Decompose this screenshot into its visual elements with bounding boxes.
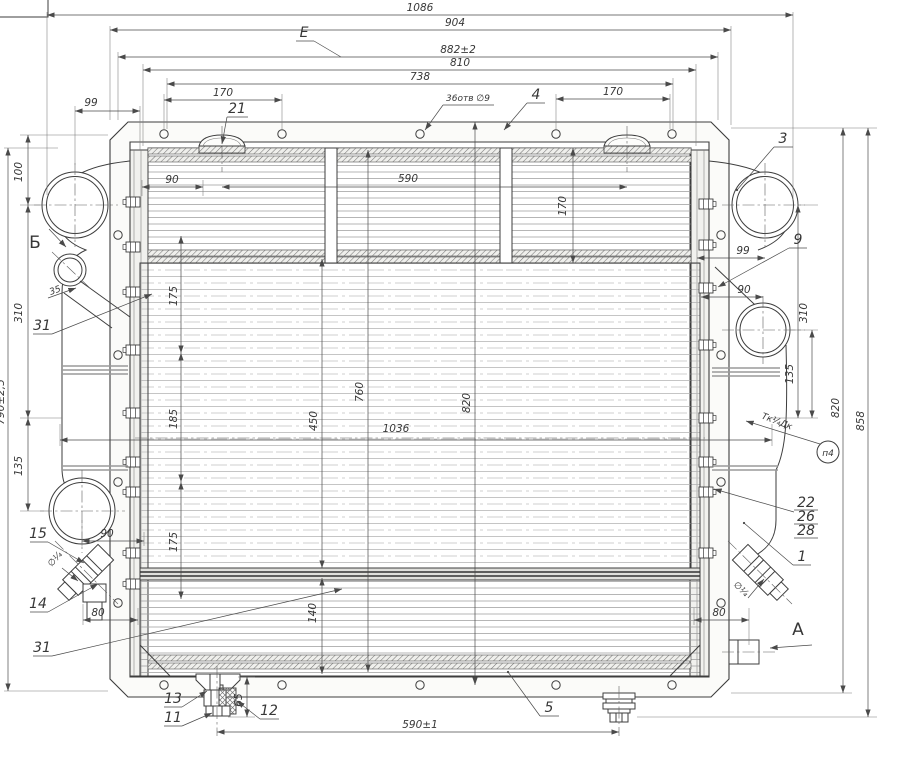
- dim-90-core-label: 90: [165, 174, 179, 186]
- callout-11: 11: [164, 710, 212, 726]
- dim-99-top-left: 99: [75, 97, 140, 111]
- dim-590-bottom: 590±1: [217, 719, 619, 732]
- callout-3-label: 3: [779, 131, 788, 147]
- dim-810: 810: [143, 57, 696, 70]
- main-core: [140, 263, 700, 568]
- view-a: A: [770, 620, 812, 648]
- view-a-label: A: [792, 620, 804, 640]
- dim-170-top-left: 170: [164, 87, 282, 100]
- callout-9: 9: [718, 232, 807, 287]
- dim-170-top-right: 170: [556, 86, 670, 99]
- dim-450-label: 450: [308, 411, 320, 431]
- radiator-drawing: 1086 904 882±2 810 738 170 170 99 90 590…: [0, 0, 900, 761]
- drawing-sheet: 1086 904 882±2 810 738 170 170 99 90 590…: [0, 0, 900, 761]
- callout-31-upper-label: 31: [33, 318, 51, 334]
- view-b-label: Б: [29, 233, 41, 253]
- dim-858: 858: [855, 128, 868, 717]
- dim-170-core-label: 170: [557, 196, 569, 216]
- dim-135-right-label: 135: [784, 364, 796, 384]
- dim-590-core-label: 590: [398, 173, 418, 185]
- tank-divider-left: [325, 148, 337, 263]
- dim-820-core-label: 820: [461, 393, 473, 413]
- callout-15-label: 15: [29, 526, 47, 542]
- dim-99-tl-label: 99: [84, 97, 98, 109]
- dim-chain-left-outer: 100 310 135: [13, 135, 28, 511]
- dim-882-label: 882±2: [440, 44, 476, 56]
- ref-p4-label: п4: [822, 449, 834, 459]
- dim-310-left-label: 310: [13, 303, 25, 323]
- callout-11-label: 11: [164, 710, 182, 726]
- dim-1036-label: 1036: [383, 423, 410, 435]
- dim-185-label: 185: [168, 409, 180, 429]
- callout-12-label: 12: [260, 703, 278, 719]
- dim-90-ll-label: 90: [100, 528, 114, 540]
- callout-13-label: 13: [164, 691, 182, 707]
- dim-810-label: 810: [450, 57, 470, 69]
- dim-175-lower-label: 175: [168, 532, 180, 552]
- sheet-border-corner: [0, 0, 48, 17]
- note-thread-label: Тк¼Дк: [760, 412, 794, 433]
- ref-p4: п4: [817, 441, 839, 463]
- tank-divider-right: [500, 148, 512, 263]
- dim-135-left-label: 135: [13, 456, 25, 476]
- dim-820-right: 820: [830, 128, 843, 693]
- dim-chain-left-plate: 175 185 175: [168, 236, 181, 599]
- dim-170-tl-label: 170: [213, 87, 233, 99]
- dim-760-label: 760: [354, 382, 366, 402]
- ref-e-label: E: [300, 25, 309, 41]
- dim-1086-label: 1086: [407, 2, 434, 14]
- dim-80-left-label: 80: [91, 607, 105, 619]
- dim-904: 904: [110, 17, 731, 30]
- dim-858-label: 858: [855, 411, 867, 431]
- dim-882: 882±2: [118, 44, 718, 57]
- callout-14-label: 14: [29, 596, 47, 612]
- dim-820-right-label: 820: [830, 398, 842, 418]
- radiator-core: [128, 148, 710, 676]
- note-quarter-left-label: ∅¼: [46, 550, 65, 569]
- dim-738: 738: [167, 71, 673, 84]
- dim-80-right-label: 80: [712, 607, 726, 619]
- dim-590-bottom-label: 590±1: [402, 719, 438, 731]
- dim-65-label: 65: [233, 693, 245, 707]
- dim-904-label: 904: [445, 17, 465, 29]
- callout-21-label: 21: [228, 101, 246, 117]
- callout-9-label: 9: [794, 232, 803, 248]
- dim-175-upper-label: 175: [168, 286, 180, 306]
- dim-100-label: 100: [13, 162, 25, 182]
- callout-5-label: 5: [545, 700, 554, 716]
- callout-31-lower-label: 31: [33, 640, 51, 656]
- note-quarter-right-label: ∅¼: [731, 580, 750, 599]
- tank-joint-band: [140, 568, 700, 580]
- callout-22-26-28: 22 26 28: [714, 489, 818, 539]
- dim-1086: 1086: [47, 2, 793, 15]
- callout-1-label: 1: [798, 549, 807, 565]
- callout-28-label: 28: [797, 523, 815, 539]
- note-thread: Тк¼Дк: [746, 412, 820, 444]
- dim-738-label: 738: [410, 71, 430, 83]
- callout-4-label: 4: [532, 87, 541, 103]
- dim-170-tr-label: 170: [603, 86, 623, 98]
- dim-790-label: 790±2,5: [0, 379, 7, 425]
- dim-90-right-label: 90: [737, 284, 751, 296]
- dim-35-label: 35: [48, 284, 62, 297]
- note-holes-label: 36отв ∅9: [446, 94, 490, 104]
- bottom-section: [140, 580, 700, 676]
- dim-310-right-label: 310: [798, 303, 810, 323]
- dim-790: 790±2,5: [0, 148, 8, 691]
- dim-99-right-label: 99: [736, 245, 750, 257]
- dim-140-label: 140: [307, 603, 319, 623]
- top-tank: [148, 148, 691, 263]
